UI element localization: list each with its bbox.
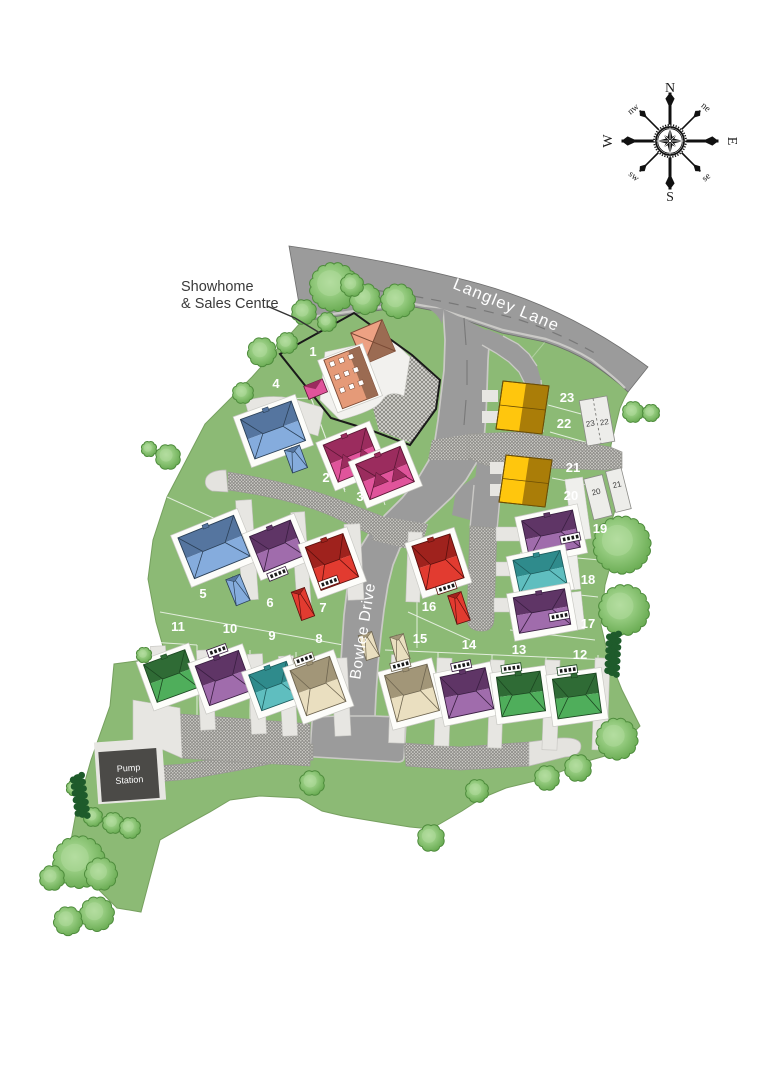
svg-text:4: 4 [272,376,280,391]
svg-text:E: E [724,137,739,146]
svg-text:W: W [601,134,616,148]
svg-text:7: 7 [319,600,326,615]
svg-text:13: 13 [512,642,526,657]
svg-text:18: 18 [581,572,595,587]
svg-text:17: 17 [581,616,595,631]
svg-text:Station: Station [115,774,144,786]
svg-text:& Sales Centre: & Sales Centre [181,296,279,312]
svg-text:S: S [666,190,674,205]
svg-text:19: 19 [593,521,607,536]
svg-text:1: 1 [309,344,316,359]
svg-text:N: N [665,81,675,96]
svg-text:8: 8 [315,631,322,646]
svg-text:5: 5 [199,586,206,601]
svg-text:3: 3 [356,489,363,504]
svg-text:Showhome: Showhome [181,279,254,295]
svg-text:Pump: Pump [116,762,140,774]
svg-text:22: 22 [557,416,571,431]
svg-text:6: 6 [266,595,273,610]
svg-text:16: 16 [422,599,436,614]
svg-text:15: 15 [413,631,427,646]
svg-text:11: 11 [171,619,185,634]
svg-text:9: 9 [268,628,275,643]
svg-text:12: 12 [573,647,587,662]
svg-text:14: 14 [462,637,477,652]
svg-text:21: 21 [566,460,580,475]
svg-text:10: 10 [223,621,237,636]
svg-text:2: 2 [322,470,329,485]
svg-text:20: 20 [564,488,578,503]
svg-text:23: 23 [560,390,574,405]
